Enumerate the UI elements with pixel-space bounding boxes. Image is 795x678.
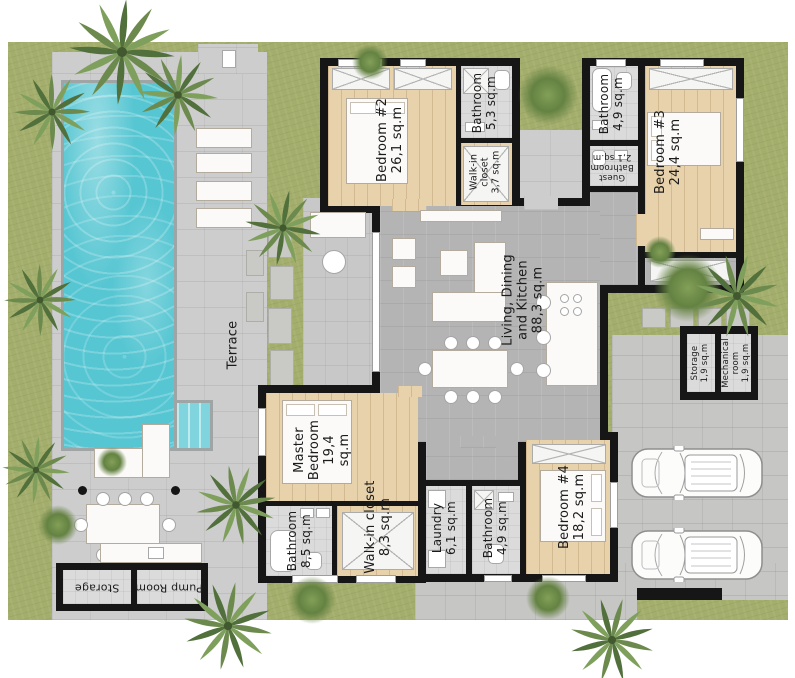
- sun-lounger: [196, 208, 252, 228]
- cooktop-burner: [573, 294, 582, 303]
- window: [736, 98, 744, 162]
- dining-table: [432, 350, 508, 388]
- armchair: [440, 250, 468, 276]
- tv-console: [420, 210, 502, 222]
- dining-chair: [488, 390, 502, 404]
- label-bathroom2: Bathroom 5,3 sq.m: [471, 73, 499, 134]
- dining-chair: [466, 390, 480, 404]
- entry-door-opening: [524, 196, 558, 210]
- room-name: Living, Dining and Kitchen: [500, 254, 530, 346]
- pillow: [591, 474, 602, 502]
- outdoor-chair: [74, 518, 88, 532]
- stepping-stone: [270, 266, 294, 300]
- label-living: Living, Dining and Kitchen 88,3 sq.m: [500, 251, 545, 349]
- label-closet2: Walk-in closet 3,7 sq.m: [468, 149, 501, 195]
- desk: [700, 228, 734, 240]
- label-bathroom4: Bathroom 4,9 sq.m: [482, 498, 510, 559]
- room-area: 26,1 sq.m: [390, 98, 405, 182]
- grass-strip-bottom-right: [637, 600, 788, 620]
- cooktop-burner: [560, 294, 569, 303]
- window: [292, 575, 338, 583]
- room-name: Bathroom: [597, 74, 611, 135]
- label-master-closet: Walk-in closet 8,3 sq.m: [363, 480, 393, 573]
- sink: [316, 508, 330, 518]
- perimeter-wall: [637, 588, 722, 600]
- room-area: 1,9 sq.m: [742, 336, 752, 390]
- pouf: [392, 238, 416, 260]
- room-name: Bedroom #2: [375, 98, 390, 182]
- window: [660, 59, 704, 67]
- stepping-stone: [270, 350, 294, 388]
- room-area: 3,7 sq.m: [491, 149, 502, 195]
- room-area: 6,1 sq.m: [445, 501, 459, 555]
- door-opening: [460, 436, 496, 448]
- wardrobe: [394, 68, 452, 90]
- window: [484, 575, 512, 582]
- outdoor-dining-table: [86, 504, 160, 544]
- room-name: Storage: [690, 346, 700, 381]
- room-area: 1,9 sq.m: [701, 344, 711, 383]
- window: [356, 575, 396, 583]
- stepping-stone: [246, 292, 264, 322]
- room-name: Bathroom: [285, 511, 299, 572]
- cooktop-burner: [560, 307, 569, 316]
- room-name: Laundry: [430, 503, 444, 553]
- window: [258, 408, 266, 456]
- pillow: [318, 404, 347, 416]
- label-pump-room: Pump Room: [135, 581, 203, 594]
- window: [338, 59, 382, 67]
- porch-table: [322, 250, 346, 274]
- sun-lounger: [196, 128, 252, 148]
- column: [171, 486, 180, 495]
- room-name: Walk-in closet: [468, 154, 490, 190]
- pillow: [591, 508, 602, 536]
- room-area: 5,3 sq.m: [485, 73, 499, 134]
- pouf: [392, 266, 416, 288]
- label-master: Master Bedroom 19,4 sq.m: [292, 417, 352, 483]
- column: [78, 486, 87, 495]
- room-name: Terrace: [225, 321, 240, 370]
- cooktop-burner: [573, 307, 582, 316]
- dining-chair: [466, 336, 480, 350]
- sofa: [432, 292, 506, 322]
- room-name: Bathroom: [470, 73, 484, 134]
- room-area: 18,2 sq.m: [572, 465, 587, 549]
- label-bedroom2: Bedroom #2 26,1 sq.m: [375, 98, 405, 182]
- room-area: 24,4 sq.m: [668, 110, 683, 194]
- swimming-pool: [61, 80, 177, 451]
- pool-steps: [177, 400, 213, 451]
- pillow: [286, 404, 315, 416]
- bar-stool: [536, 363, 551, 378]
- outdoor-chair: [162, 518, 176, 532]
- stepping-stone: [670, 308, 694, 328]
- kitchen-island: [546, 282, 598, 386]
- outdoor-chair: [140, 492, 154, 506]
- stepping-stone: [642, 308, 666, 328]
- outdoor-chair: [118, 492, 132, 506]
- label-master-bath: Bathroom 8,5 sq.m: [286, 511, 314, 572]
- label-bedroom3: Bedroom #3 24,4 sq.m: [653, 110, 683, 194]
- room-name: Pump Room: [135, 581, 203, 594]
- dining-chair: [418, 362, 432, 376]
- label-storage-right: Storage 1,9 sq.m: [691, 344, 711, 383]
- floor-plan-canvas: Bedroom #2 26,1 sq.m Bathroom 5,3 sq.m W…: [0, 0, 795, 678]
- room-area: 19,4 sq.m: [322, 417, 352, 483]
- sun-lounger: [196, 153, 252, 173]
- outdoor-sofa: [142, 424, 170, 478]
- room-name: Bathroom: [481, 498, 495, 559]
- stepping-stone: [268, 228, 292, 258]
- room-name: Walk-in closet: [363, 480, 378, 573]
- window: [596, 59, 626, 67]
- dining-chair: [444, 390, 458, 404]
- label-bedroom4: Bedroom #4 18,2 sq.m: [557, 465, 587, 549]
- stepping-stone: [246, 250, 264, 276]
- dining-chair: [510, 362, 524, 376]
- pillow: [350, 102, 376, 114]
- window: [542, 575, 586, 582]
- room-area: 8,3 sq.m: [378, 480, 393, 573]
- room-name: Storage: [75, 581, 119, 594]
- label-mechanical: Mechanical room 1,9 sq.m: [722, 336, 752, 390]
- room-name: Bedroom #4: [557, 465, 572, 549]
- sun-lounger: [196, 181, 252, 201]
- stepping-stone: [698, 308, 722, 328]
- door-opening: [398, 386, 422, 397]
- stepping-stone: [268, 308, 292, 344]
- wardrobe: [649, 68, 733, 90]
- room-area: 4,9 sq.m: [496, 498, 510, 559]
- outdoor-chair: [96, 492, 110, 506]
- window: [610, 482, 618, 528]
- label-bathroom3: Bathroom 4,9 sq.m: [598, 74, 626, 135]
- room-area: 2,1 sq.m: [587, 151, 637, 161]
- stepping-stone: [726, 308, 750, 328]
- label-guest-bathroom: Guest Bathroom 2,1 sq.m: [587, 151, 637, 181]
- room-area: 88,3 sq.m: [531, 251, 546, 349]
- wardrobe: [332, 68, 390, 90]
- label-storage-left: Storage: [75, 581, 119, 594]
- wardrobe: [650, 260, 730, 282]
- door-opening: [636, 214, 648, 246]
- room-name: Mechanical room: [721, 338, 741, 388]
- room-name: Master Bedroom: [292, 420, 322, 480]
- porch-sofa: [310, 212, 366, 238]
- room-name: Bedroom #3: [653, 110, 668, 194]
- gate-icon: [222, 50, 236, 68]
- room-area: 4,9 sq.m: [612, 74, 626, 135]
- window: [400, 59, 426, 67]
- room-area: 8,5 sq.m: [300, 511, 314, 572]
- dining-chair: [444, 336, 458, 350]
- wardrobe: [532, 444, 606, 464]
- label-laundry: Laundry 6,1 sq.m: [431, 501, 459, 555]
- sliding-glass-door: [372, 232, 380, 372]
- label-terrace: Terrace: [225, 321, 240, 370]
- room-name: Guest Bathroom: [590, 162, 633, 182]
- sink: [148, 547, 164, 559]
